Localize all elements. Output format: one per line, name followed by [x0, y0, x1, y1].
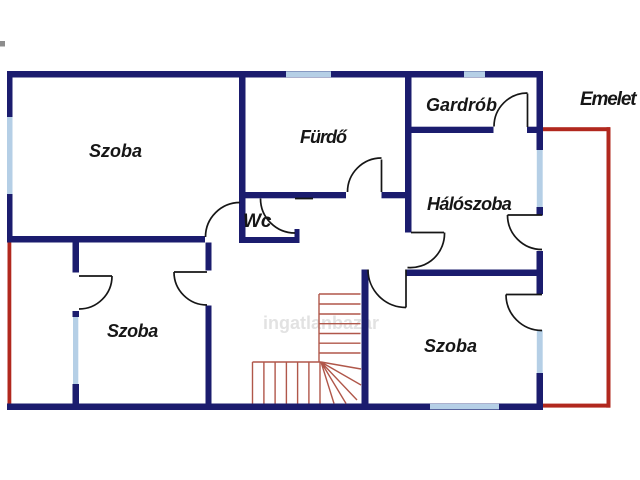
svg-text:Wc: Wc [243, 211, 272, 232]
svg-text:Gardrób: Gardrób [426, 95, 497, 115]
svg-text:Szoba: Szoba [424, 336, 477, 356]
svg-text:Fürdő: Fürdő [300, 127, 348, 147]
svg-text:Hálószoba: Hálószoba [427, 194, 512, 214]
svg-text:Szoba: Szoba [107, 321, 158, 341]
svg-text:Szoba: Szoba [89, 141, 142, 161]
svg-text:Emelet: Emelet [580, 89, 637, 110]
